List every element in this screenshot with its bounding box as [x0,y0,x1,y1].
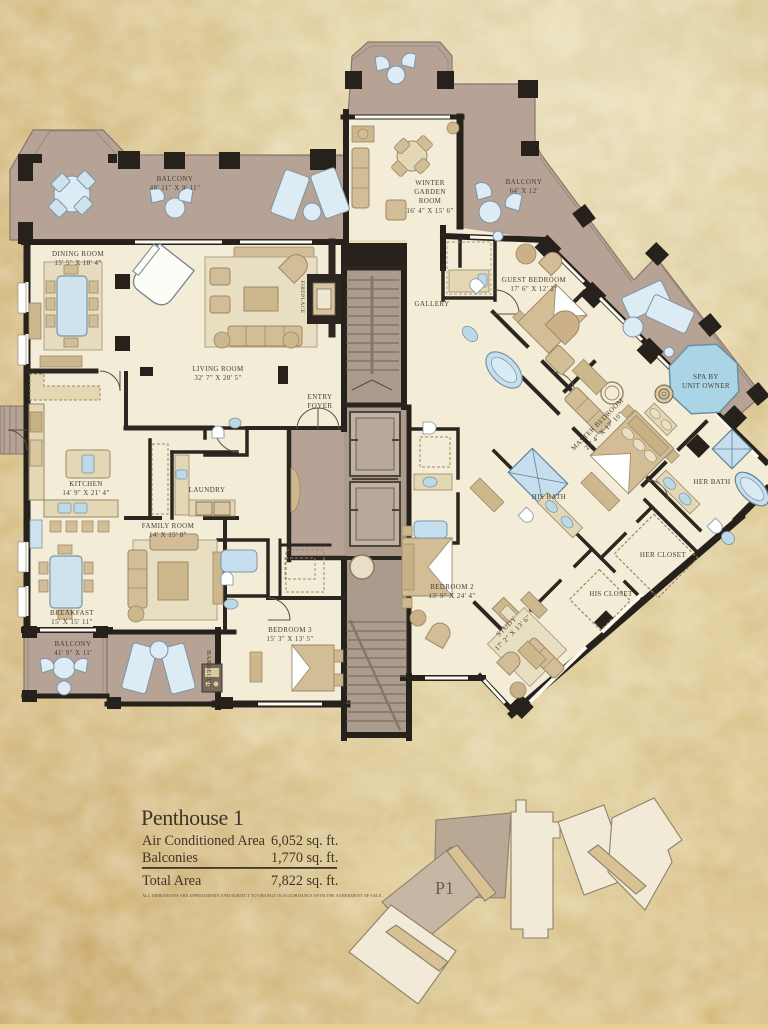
svg-text:BALCONY: BALCONY [506,178,543,186]
svg-text:P1: P1 [435,878,454,898]
svg-text:16' 4" X 15' 6": 16' 4" X 15' 6" [406,207,453,215]
svg-text:DINING ROOM: DINING ROOM [52,250,104,258]
svg-text:14' 9" X 21' 4": 14' 9" X 21' 4" [62,489,109,497]
svg-text:14' X 15' 8": 14' X 15' 8" [149,531,187,539]
svg-text:13' 9" X 24' 4": 13' 9" X 24' 4" [428,592,475,600]
svg-text:WINTER: WINTER [415,179,445,187]
svg-text:KITCHEN: KITCHEN [69,480,103,488]
svg-text:HER BATH: HER BATH [693,478,730,486]
svg-text:BEDROOM 3: BEDROOM 3 [268,626,312,634]
svg-text:SPA BY: SPA BY [693,373,719,381]
svg-text:GARDEN: GARDEN [414,188,446,196]
svg-text:1,770 sq. ft.: 1,770 sq. ft. [271,850,338,866]
svg-text:BREAKFAST: BREAKFAST [50,609,94,617]
svg-text:HER CLOSET: HER CLOSET [640,551,687,559]
svg-text:ROOM: ROOM [419,197,442,205]
svg-text:LIVING ROOM: LIVING ROOM [192,365,244,373]
svg-text:48' 11" X 9' 11": 48' 11" X 9' 11" [150,184,201,192]
svg-text:Air Conditioned Area: Air Conditioned Area [142,833,266,849]
svg-text:FAMILY ROOM: FAMILY ROOM [142,522,195,530]
svg-text:Total Area: Total Area [142,873,202,889]
svg-text:UNIT OWNER: UNIT OWNER [682,382,730,390]
svg-text:BALCONY: BALCONY [157,175,194,183]
svg-text:BARBECUE: BARBECUE [205,650,212,688]
svg-text:LAUNDRY: LAUNDRY [189,486,226,494]
svg-text:ENTRY: ENTRY [308,393,333,401]
svg-text:15' 5" X 18' 4": 15' 5" X 18' 4" [54,259,101,267]
svg-text:Penthouse 1: Penthouse 1 [141,805,244,830]
svg-text:ALL DIMENSIONS ARE APPROXIMATE: ALL DIMENSIONS ARE APPROXIMATE AND SUBJE… [142,893,382,898]
svg-text:15' X 15' 11": 15' X 15' 11" [51,618,93,626]
svg-text:GALLERY: GALLERY [414,300,449,308]
svg-text:64' X 12': 64' X 12' [510,187,539,195]
svg-text:FIREPLACE: FIREPLACE [299,281,305,314]
svg-text:BALCONY: BALCONY [55,640,92,648]
svg-text:Balconies: Balconies [142,850,198,866]
svg-text:HIS BATH: HIS BATH [532,493,567,501]
svg-text:17' 6" X 12' 2": 17' 6" X 12' 2" [510,285,557,293]
svg-text:BEDROOM 2: BEDROOM 2 [430,583,474,591]
svg-text:FOYER: FOYER [308,402,333,410]
svg-text:7,822 sq. ft.: 7,822 sq. ft. [271,873,338,889]
svg-text:6,052 sq. ft.: 6,052 sq. ft. [271,833,338,849]
svg-text:15' 3" X 13' 5": 15' 3" X 13' 5" [266,635,313,643]
svg-text:32' 7" X 20' 5": 32' 7" X 20' 5" [194,374,241,382]
svg-text:HIS CLOSET: HIS CLOSET [589,590,633,598]
svg-text:GUEST BEDROOM: GUEST BEDROOM [502,276,567,284]
svg-text:41' 9" X 11': 41' 9" X 11' [54,649,92,657]
